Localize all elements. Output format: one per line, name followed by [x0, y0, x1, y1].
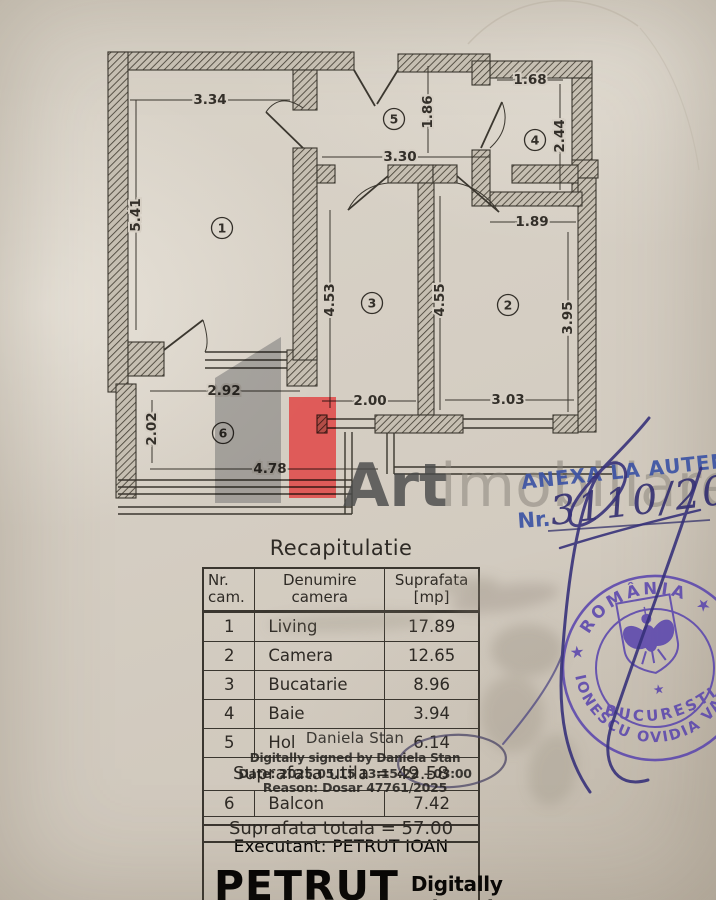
room-number: 3 [362, 293, 383, 314]
watermark-square [289, 397, 336, 498]
header-line: [mp] [414, 588, 450, 606]
cell-area: 17.89 [385, 611, 479, 641]
window-lines [118, 352, 612, 514]
header-line: Denumire [283, 571, 357, 589]
header-line: Nr. [208, 571, 229, 589]
room-number: 6 [213, 423, 234, 444]
room-number: 1 [212, 218, 233, 239]
dimension-label: 3.30 [383, 149, 416, 165]
stamp-outer-circle [548, 561, 716, 774]
dimension-label: 4.55 [432, 283, 448, 316]
handwritten-number: 3110/2025 [548, 461, 716, 535]
table-row: 3 Bucatarie 8.96 [203, 670, 479, 699]
dimension-label: 2.44 [552, 119, 568, 152]
dimension-label: 4.78 [253, 461, 286, 477]
cell-num: 1 [203, 611, 255, 641]
dimension-labels: 3.34 5.41 1.86 3.30 1.68 2.44 1.89 4.53 … [128, 72, 576, 477]
stamp-inner-circle [587, 600, 716, 737]
room-number: 5 [384, 109, 405, 130]
dimension-label: 2.92 [207, 383, 240, 399]
table-row: 5 Hol 6.14 [203, 728, 479, 757]
cell-num: 3 [203, 670, 255, 699]
stamp-city-arc: BUCUREŞTI [600, 681, 716, 734]
subtotal-cell: Suprafata utila = 49.58 [203, 757, 479, 790]
header-suprafata: Suprafata [mp] [385, 568, 479, 611]
header-denumire: Denumire camera [255, 568, 385, 611]
pen-signature-stroke [561, 418, 649, 792]
floor-plan: 3.34 5.41 1.86 3.30 1.68 2.44 1.89 4.53 … [108, 52, 612, 514]
recap-table-section: Recapitulatie Nr. cam. Denumire camera S… [202, 536, 480, 843]
room-number-label: 5 [390, 112, 399, 127]
pen-signature-stroke [608, 468, 701, 782]
table-row: 6 Balcon 7.42 [203, 790, 479, 816]
room-number-label: 3 [368, 296, 377, 311]
pen-signature-stroke [503, 655, 562, 744]
pen-signature-stroke [560, 510, 700, 548]
table-title: Recapitulatie [202, 536, 480, 560]
dimension-label: 2.00 [353, 393, 386, 409]
room-number: 2 [498, 295, 519, 316]
dimension-label: 3.95 [560, 301, 576, 334]
dimension-label: 3.34 [193, 92, 226, 108]
watermark-art-text: Art [343, 451, 448, 521]
dimension-label: 5.41 [128, 198, 144, 231]
header-nr-cam: Nr. cam. [203, 568, 255, 611]
subtotal-row: Suprafata utila = 49.58 [203, 757, 479, 790]
room-number-label: 1 [218, 221, 227, 236]
total-row: Suprafata totala = 57.00 [203, 816, 479, 842]
cell-name: Camera [255, 641, 385, 670]
dimension-label: 1.86 [420, 95, 436, 128]
room-number-label: 6 [219, 426, 228, 441]
dimension-label: 1.89 [515, 214, 548, 230]
cell-num: 6 [203, 790, 255, 816]
signer-name-text: PETRUT [214, 866, 399, 900]
cell-area: 12.65 [385, 641, 479, 670]
annex-nr-label: Nr. [517, 507, 552, 533]
cell-num: 5 [203, 728, 255, 757]
header-line: cam. [208, 588, 245, 606]
room-number: 4 [525, 130, 546, 151]
cell-name: Baie [255, 699, 385, 728]
cell-area: 8.96 [385, 670, 479, 699]
header-line: camera [291, 588, 348, 606]
stamp-star: ★ [652, 682, 666, 699]
cell-name: Living [255, 611, 385, 641]
dimension-label: 2.02 [144, 412, 160, 445]
cell-name: Hol [255, 728, 385, 757]
coat-of-arms-eagle [619, 603, 679, 668]
walls-layer [108, 52, 598, 498]
table-row: 1 Living 17.89 [203, 611, 479, 641]
scanned-document-page: Recapitulatie Nr. cam. Denumire camera S… [0, 0, 716, 900]
door-symbols [164, 70, 505, 352]
dimension-label: 4.53 [322, 283, 338, 316]
room-number-label: 4 [531, 133, 540, 148]
cell-name: Bucatarie [255, 670, 385, 699]
dimension-lines [130, 66, 576, 469]
annex-nr-line [548, 520, 710, 531]
cell-area: 7.42 [385, 790, 479, 816]
table-header-row: Nr. cam. Denumire camera Suprafata [mp] [203, 568, 479, 611]
watermark-logo: Art imobiliare [215, 337, 716, 521]
signature-row: PETRUT Digitally signed [204, 866, 478, 900]
cell-num: 2 [203, 641, 255, 670]
cell-area: 3.94 [385, 699, 479, 728]
stamp-country-arc: ★ ROMÂNIA ★ [555, 567, 716, 664]
room-number-label: 2 [504, 298, 513, 313]
dimension-label: 1.68 [513, 72, 546, 88]
stamp-city-text: BUCUREŞTI [600, 681, 716, 734]
cell-name: Balcon [255, 790, 385, 816]
header-line: Suprafata [395, 571, 468, 589]
stamp-country-text: ★ ROMÂNIA ★ [555, 567, 716, 664]
table-row: 4 Baie 3.94 [203, 699, 479, 728]
recap-table: Nr. cam. Denumire camera Suprafata [mp] … [202, 567, 480, 843]
watermark-triangle [215, 337, 281, 503]
cell-area: 6.14 [385, 728, 479, 757]
paper-crease [468, 1, 699, 170]
dimension-label: 3.03 [491, 392, 524, 408]
table-row: 2 Camera 12.65 [203, 641, 479, 670]
watermark-imobiliare-text: imobiliare [440, 451, 716, 521]
total-cell: Suprafata totala = 57.00 [203, 816, 479, 842]
annex-stamp: ANEXA LA AUTENTIF Nr. 3110/2025 [517, 444, 716, 535]
annex-stamp-title: ANEXA LA AUTENTIF [520, 444, 716, 494]
stamp-shield [616, 594, 682, 677]
room-numbers: 1 2 3 4 5 [212, 109, 546, 444]
cell-num: 4 [203, 699, 255, 728]
digitally-signed-note: Digitally signed [411, 872, 503, 900]
